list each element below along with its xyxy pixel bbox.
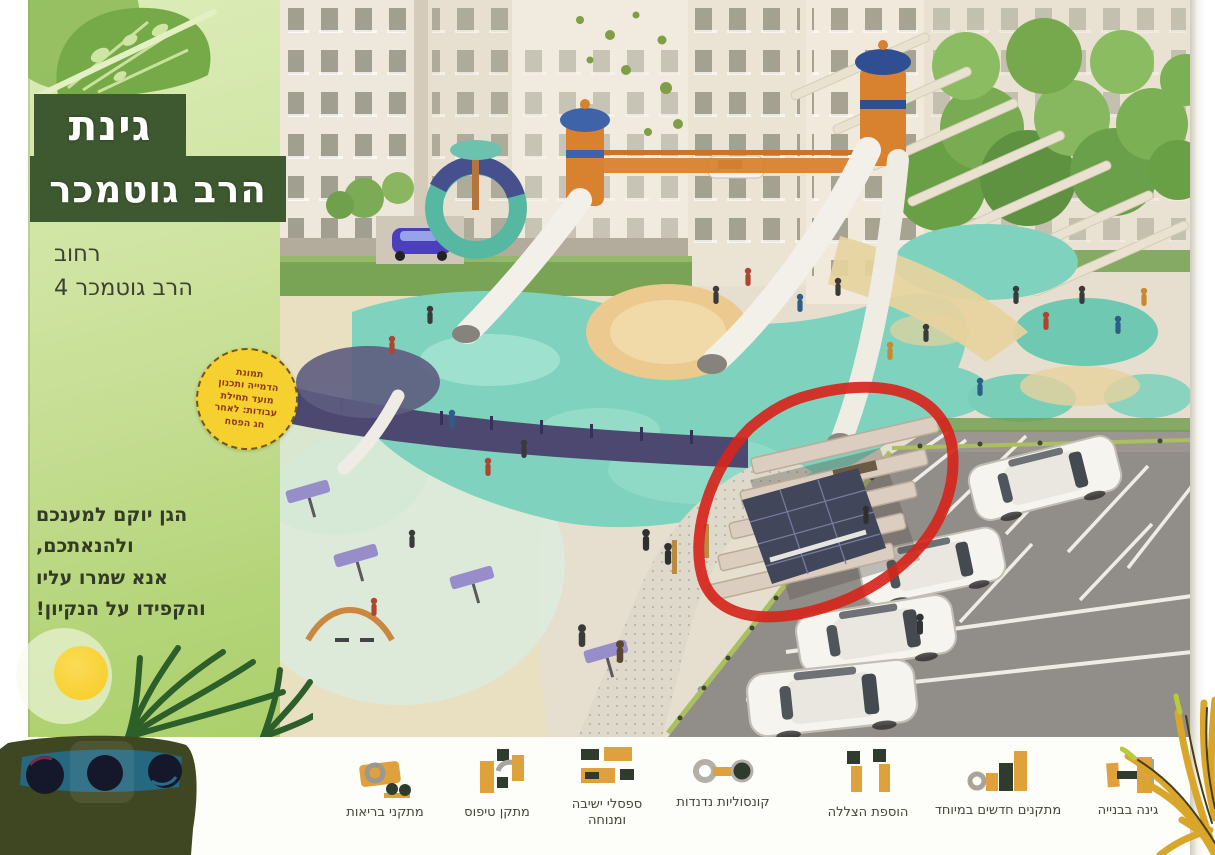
legend-item-swings: קונסוליות נדנדות	[668, 751, 778, 811]
climbing-structure-icon	[468, 745, 526, 801]
message-line2: ולהנאתכם,	[36, 531, 251, 562]
new-equipment-icon	[967, 745, 1029, 799]
leaf-decoration	[28, 0, 218, 100]
legend-label: מתקנים חדשים במיוחד	[935, 803, 1061, 819]
legend-label: ספסלי ישיבה ומנוחה	[552, 797, 662, 830]
garden-title-line2: הרב גוטמכר	[30, 156, 286, 222]
fitness-equipment-icon	[356, 751, 414, 801]
legend-item-fitness: מתקני בריאות	[320, 751, 450, 821]
legend-item-new-equipment: מתקנים חדשים במיוחד	[908, 745, 1088, 819]
legend-label: הוספת הצללה	[828, 805, 909, 821]
message-line1: הגן יוקם למענכם	[36, 500, 251, 531]
legend-item-climbing: מתקן טיפוס	[432, 745, 562, 821]
street-address: רחוב הרב גוטמכר 4	[54, 238, 269, 306]
shade-addition-icon	[839, 745, 897, 801]
benches-icon	[577, 743, 637, 793]
palm-frond-decoration	[68, 630, 313, 737]
redacted-logo-blob	[0, 733, 200, 855]
legend-item-benches: ספסלי ישיבה ומנוחה	[552, 743, 662, 830]
garden-title-line1: גינת	[34, 94, 186, 156]
swing-consoles-icon	[692, 751, 754, 791]
poster-photo: גינת הרב גוטמכר רחוב הרב גוטמכר 4 תמונת …	[0, 0, 1215, 855]
care-message: הגן יוקם למענכם ולהנאתכם, אנא שמרו עליו …	[36, 500, 251, 625]
message-line4: והקפידו על הנקיון!	[36, 594, 251, 625]
address-line1: רחוב	[54, 238, 269, 272]
playground-rendering	[280, 0, 1192, 737]
legend-band: מתקני בריאות מתקן טיפוס ספסלי ישיבה ומנו…	[28, 737, 1192, 855]
gold-palm-frond	[1120, 608, 1215, 855]
address-line2: הרב גוטמכר 4	[54, 272, 269, 306]
info-panel: גינת הרב גוטמכר רחוב הרב גוטמכר 4 תמונת …	[28, 0, 280, 737]
message-line3: אנא שמרו עליו	[36, 563, 251, 594]
legend-label: קונסוליות נדנדות	[676, 795, 769, 811]
legend-label: מתקן טיפוס	[464, 805, 530, 821]
legend-label: מתקני בריאות	[346, 805, 423, 821]
